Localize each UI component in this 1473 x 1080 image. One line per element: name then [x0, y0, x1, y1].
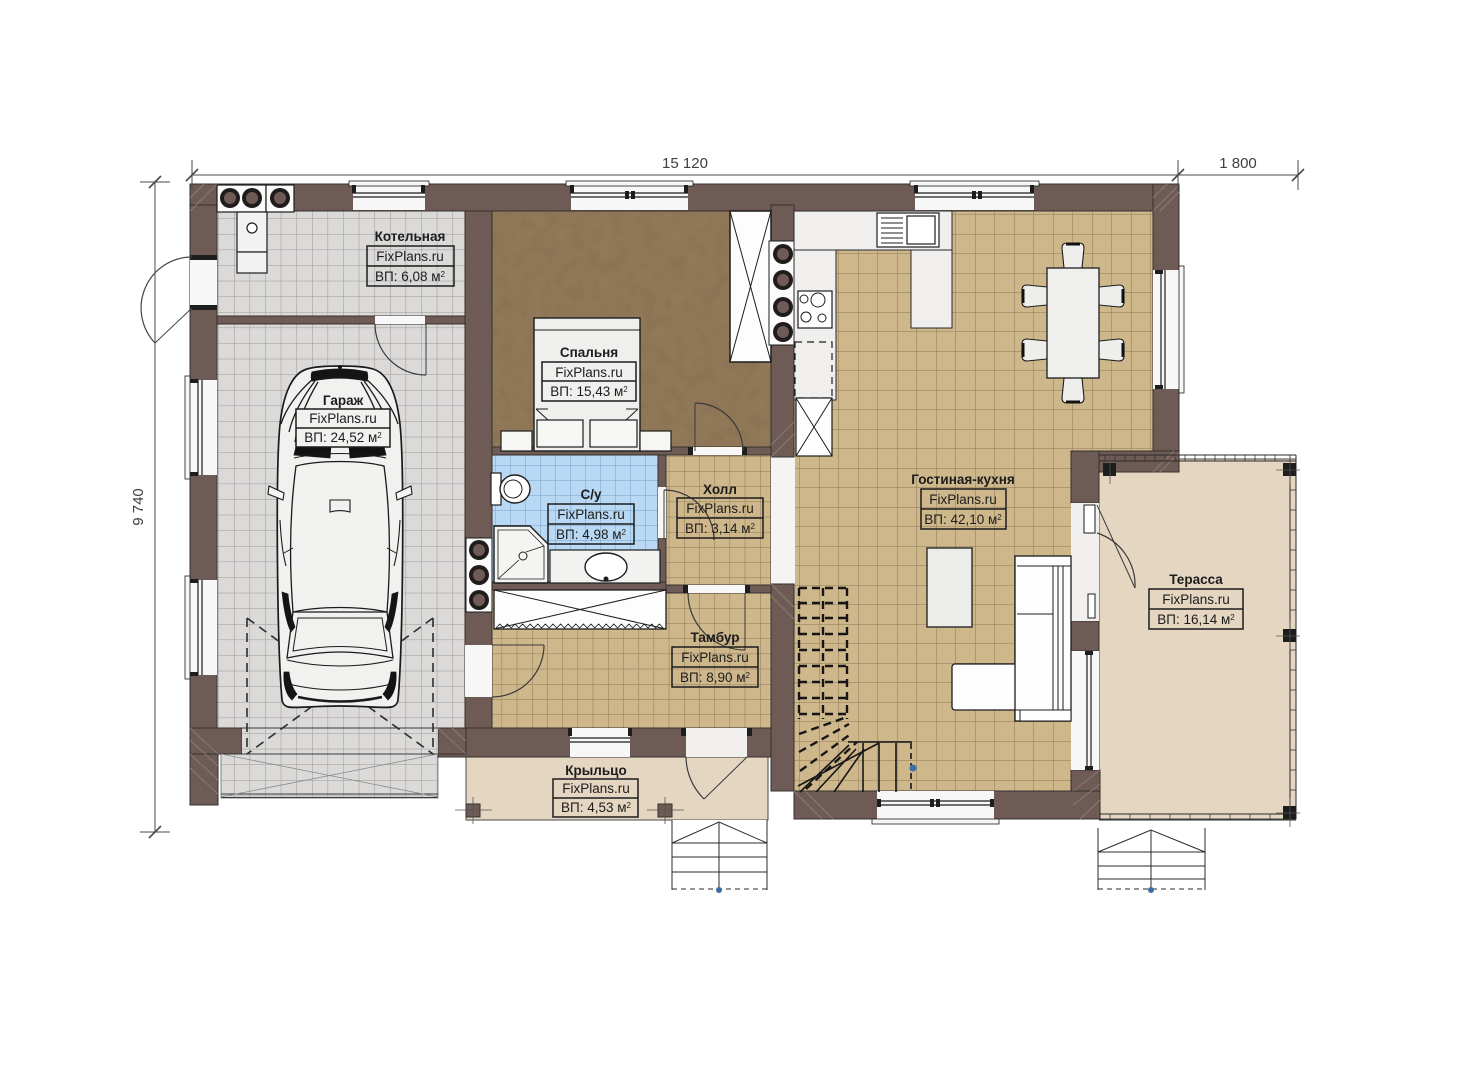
svg-text:FixPlans.ru: FixPlans.ru: [1162, 592, 1230, 607]
svg-text:9 740: 9 740: [130, 488, 147, 526]
svg-text:ВП: 8,90 м2: ВП: 8,90 м2: [680, 670, 751, 685]
svg-text:FixPlans.ru: FixPlans.ru: [562, 781, 630, 796]
svg-text:Тамбур: Тамбур: [691, 630, 740, 645]
svg-text:FixPlans.ru: FixPlans.ru: [376, 249, 444, 264]
svg-text:Котельная: Котельная: [375, 229, 446, 244]
svg-text:FixPlans.ru: FixPlans.ru: [929, 492, 997, 507]
svg-text:ВП: 16,14 м2: ВП: 16,14 м2: [1157, 612, 1235, 627]
svg-text:ВП: 24,52 м2: ВП: 24,52 м2: [304, 430, 382, 445]
svg-text:ВП: 6,08 м2: ВП: 6,08 м2: [375, 269, 446, 284]
svg-text:Терасса: Терасса: [1169, 572, 1223, 587]
svg-text:FixPlans.ru: FixPlans.ru: [681, 650, 749, 665]
svg-text:FixPlans.ru: FixPlans.ru: [557, 507, 625, 522]
svg-text:ВП: 15,43 м2: ВП: 15,43 м2: [550, 384, 628, 399]
svg-text:FixPlans.ru: FixPlans.ru: [555, 365, 623, 380]
svg-text:ВП: 3,14 м2: ВП: 3,14 м2: [685, 521, 756, 536]
svg-text:FixPlans.ru: FixPlans.ru: [309, 411, 377, 426]
svg-text:Холл: Холл: [703, 482, 737, 497]
svg-text:1 800: 1 800: [1219, 155, 1257, 172]
svg-text:С/у: С/у: [580, 487, 602, 502]
svg-text:FixPlans.ru: FixPlans.ru: [686, 501, 754, 516]
svg-text:Крыльцо: Крыльцо: [565, 763, 626, 778]
svg-text:ВП: 42,10 м2: ВП: 42,10 м2: [924, 512, 1002, 527]
svg-text:Гостиная-кухня: Гостиная-кухня: [911, 472, 1014, 487]
svg-text:ВП: 4,53 м2: ВП: 4,53 м2: [561, 800, 632, 815]
svg-text:15 120: 15 120: [662, 155, 708, 172]
svg-text:Спальня: Спальня: [560, 345, 618, 360]
svg-text:Гараж: Гараж: [323, 393, 364, 408]
svg-text:ВП: 4,98 м2: ВП: 4,98 м2: [556, 527, 627, 542]
